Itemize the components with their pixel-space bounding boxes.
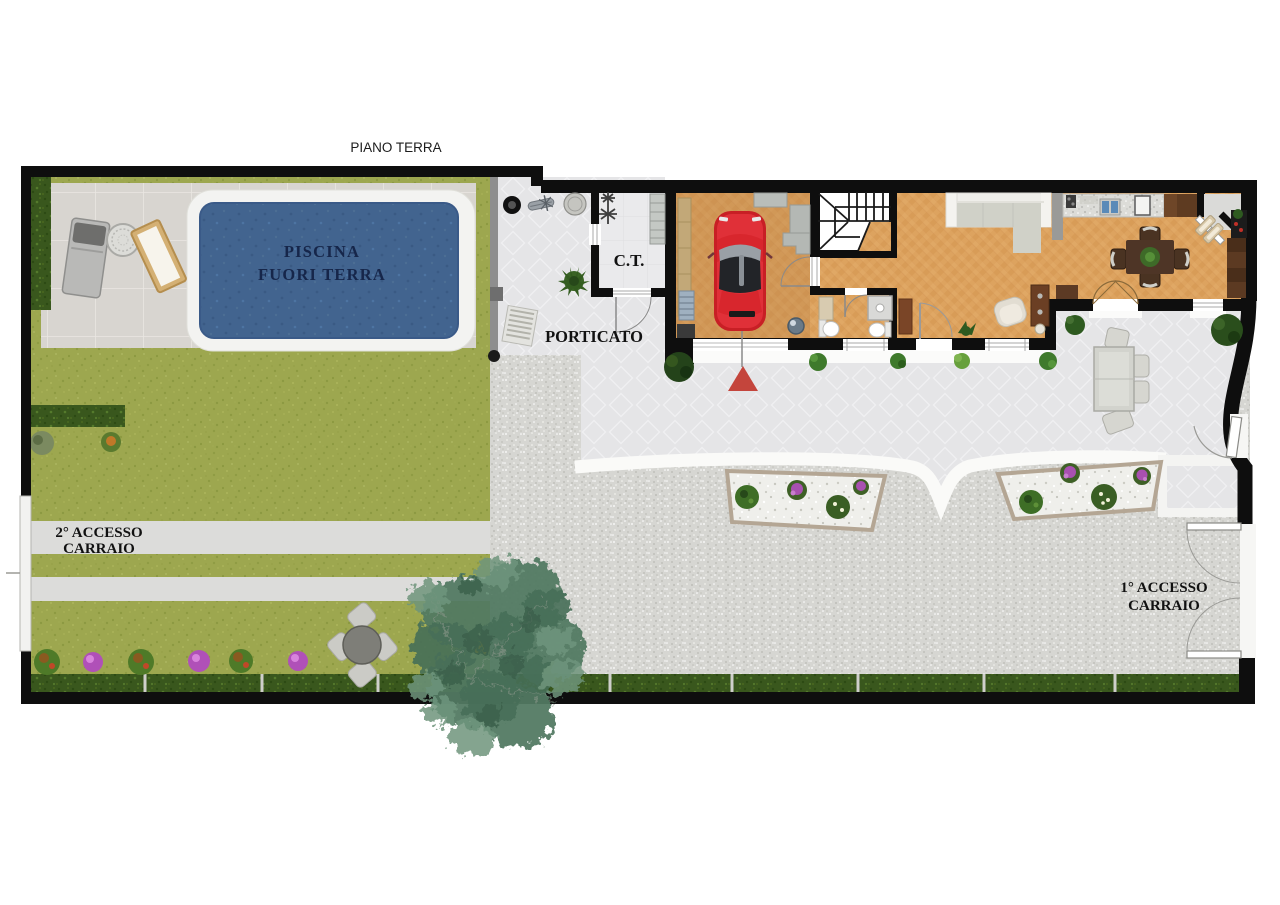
svg-text:PIANO TERRA: PIANO TERRA (350, 140, 441, 155)
svg-text:1° ACCESSO: 1° ACCESSO (1120, 580, 1207, 596)
svg-text:CARRAIO: CARRAIO (63, 541, 135, 557)
svg-text:2° ACCESSO: 2° ACCESSO (55, 525, 142, 541)
svg-text:CARRAIO: CARRAIO (1128, 598, 1200, 614)
svg-text:PISCINA: PISCINA (284, 242, 360, 261)
svg-text:FUORI TERRA: FUORI TERRA (258, 265, 386, 284)
svg-text:PORTICATO: PORTICATO (545, 327, 643, 346)
svg-text:C.T.: C.T. (614, 251, 645, 270)
